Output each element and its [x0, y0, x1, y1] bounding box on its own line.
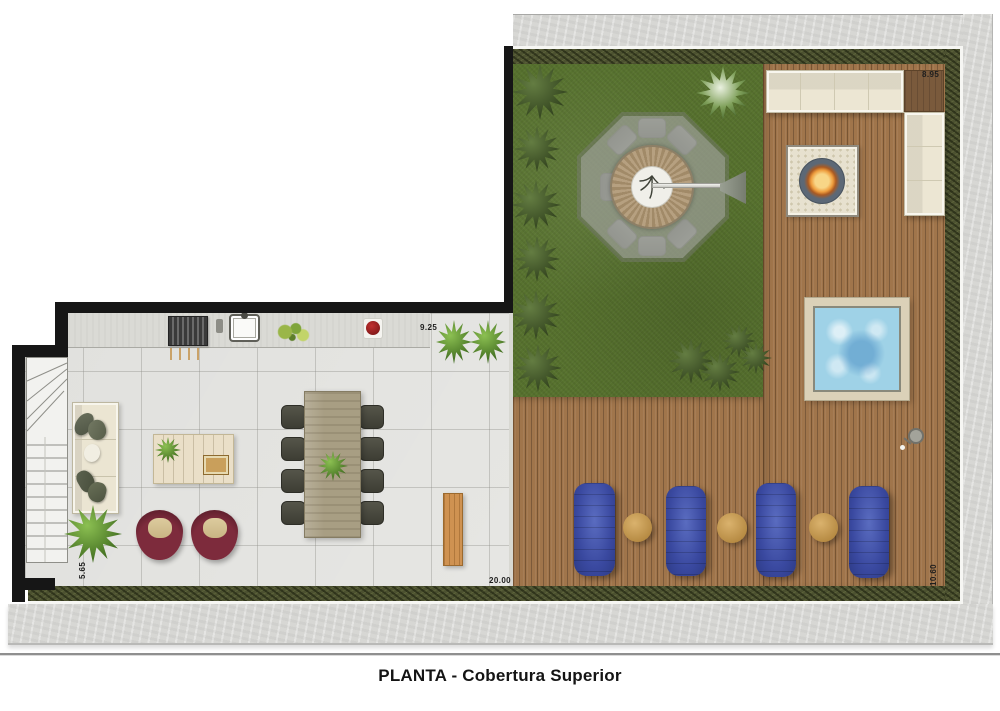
outdoor-sofa-vertical	[904, 112, 945, 216]
terrace-left-wall	[504, 46, 513, 306]
side-table	[717, 513, 747, 543]
dining-chair	[281, 405, 306, 429]
dining-chair	[359, 437, 384, 461]
sun-lounger	[849, 486, 889, 578]
dining-chair	[359, 501, 384, 525]
hedge-top	[513, 49, 945, 64]
notch-cover	[12, 302, 55, 345]
side-table	[623, 513, 652, 542]
planter-edge-right	[960, 46, 963, 604]
dim-label-bottom: 20.00	[489, 576, 511, 585]
dining-chair	[281, 501, 306, 525]
planter-edge-bottom	[28, 601, 963, 604]
title-divider	[0, 653, 1000, 656]
floor-deck-threshold	[509, 313, 513, 586]
hedge-bottom	[28, 586, 945, 601]
plunge-pool	[805, 298, 909, 400]
plan-title: PLANTA - Cobertura Superior	[0, 666, 1000, 686]
sink-faucet	[241, 312, 248, 319]
concrete-walkway-bottom	[8, 604, 993, 645]
dining-chair	[281, 437, 306, 461]
utensil-rack	[170, 348, 206, 360]
hedge-right	[945, 49, 960, 601]
dining-chair	[281, 469, 306, 493]
staircase	[26, 357, 68, 563]
wood-deck-bottom	[513, 397, 763, 586]
sun-lounger	[666, 486, 706, 576]
dining-chair	[359, 469, 384, 493]
fruit-plate-fruit	[366, 321, 380, 335]
serving-tray	[203, 455, 229, 475]
bottom-return-wall	[25, 578, 55, 590]
notch-vertical-wall	[55, 302, 68, 347]
outdoor-sofa-horizontal	[766, 70, 904, 113]
interior-left-wall	[12, 345, 25, 602]
condiment-bottle	[216, 319, 223, 333]
dim-label-living: 5.65	[78, 553, 87, 579]
dim-label-kitchen: 9.25	[420, 323, 437, 332]
sun-lounger	[574, 483, 615, 576]
wood-bench	[443, 493, 463, 566]
umbrella-arm	[652, 183, 730, 188]
fire-pit-bowl	[799, 158, 845, 204]
armchair-cushion	[148, 518, 172, 538]
armchair-cushion	[203, 518, 227, 538]
dim-label-terrace-right: 10.60	[929, 552, 938, 586]
concrete-walkway-top	[513, 14, 993, 46]
cooktop-grill	[168, 316, 208, 346]
side-table	[809, 513, 838, 542]
sun-lounger	[756, 483, 796, 577]
floor-plan-page: 8.95 10.60 9.25	[0, 0, 1000, 711]
dim-label-terrace-top: 8.95	[922, 70, 939, 79]
interior-top-wall	[55, 302, 513, 313]
concrete-walkway-right	[963, 14, 993, 645]
deck-valve-dot	[900, 445, 905, 450]
dining-chair	[359, 405, 384, 429]
herb-garnish	[276, 322, 312, 344]
